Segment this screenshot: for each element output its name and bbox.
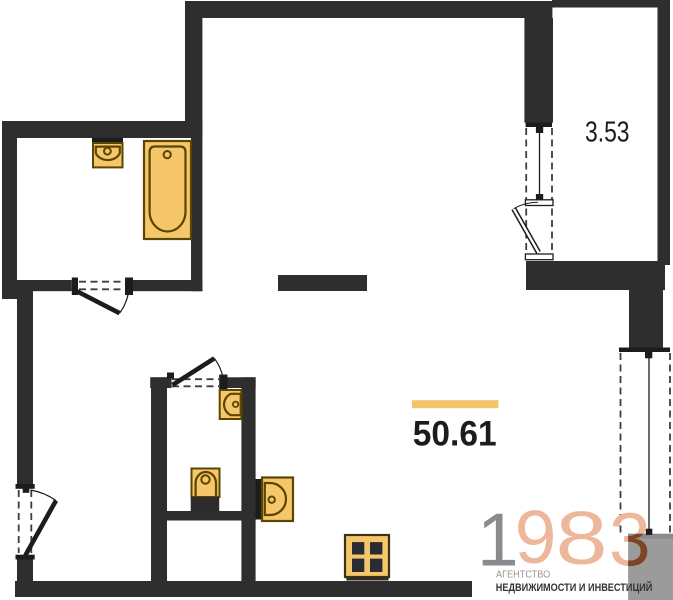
svg-text:3.53: 3.53 [585, 117, 630, 149]
svg-text:9: 9 [515, 495, 557, 579]
svg-text:50.61: 50.61 [413, 415, 497, 454]
svg-text:НЕДВИЖИМОСТИ И ИНВЕСТИЦИЙ: НЕДВИЖИМОСТИ И ИНВЕСТИЦИЙ [496, 581, 653, 594]
svg-text:АГЕНТСТВО: АГЕНТСТВО [496, 570, 550, 581]
svg-text:8: 8 [556, 496, 608, 580]
